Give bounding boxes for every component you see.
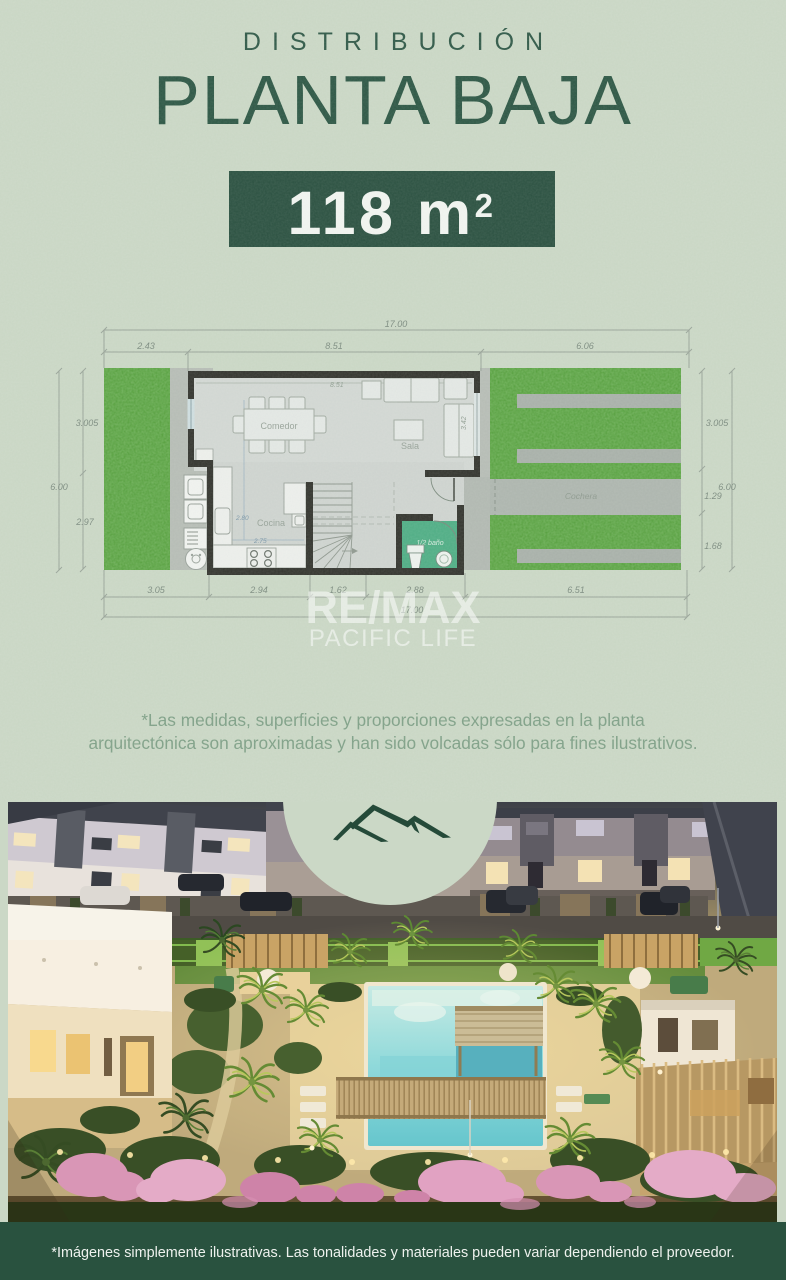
svg-text:3.42: 3.42 — [461, 416, 468, 430]
svg-text:2.43: 2.43 — [136, 341, 155, 351]
svg-text:3.005: 3.005 — [706, 418, 730, 428]
svg-text:Comedor: Comedor — [260, 421, 297, 431]
svg-text:6.06: 6.06 — [576, 341, 594, 351]
svg-text:3.005: 3.005 — [76, 418, 100, 428]
svg-text:8.51: 8.51 — [325, 341, 343, 351]
svg-text:2.75: 2.75 — [253, 538, 267, 545]
svg-text:2.80: 2.80 — [235, 515, 249, 522]
svg-text:Cochera: Cochera — [565, 491, 597, 501]
svg-text:2.97: 2.97 — [75, 517, 95, 527]
svg-text:8.51: 8.51 — [330, 382, 344, 389]
svg-text:1.68: 1.68 — [704, 541, 722, 551]
svg-text:6.00: 6.00 — [50, 482, 68, 492]
svg-text:17.00: 17.00 — [385, 319, 408, 329]
svg-text:1.29: 1.29 — [704, 491, 722, 501]
svg-text:6.00: 6.00 — [718, 482, 736, 492]
svg-text:Cocina: Cocina — [257, 518, 285, 528]
svg-text:Sala: Sala — [401, 441, 419, 451]
